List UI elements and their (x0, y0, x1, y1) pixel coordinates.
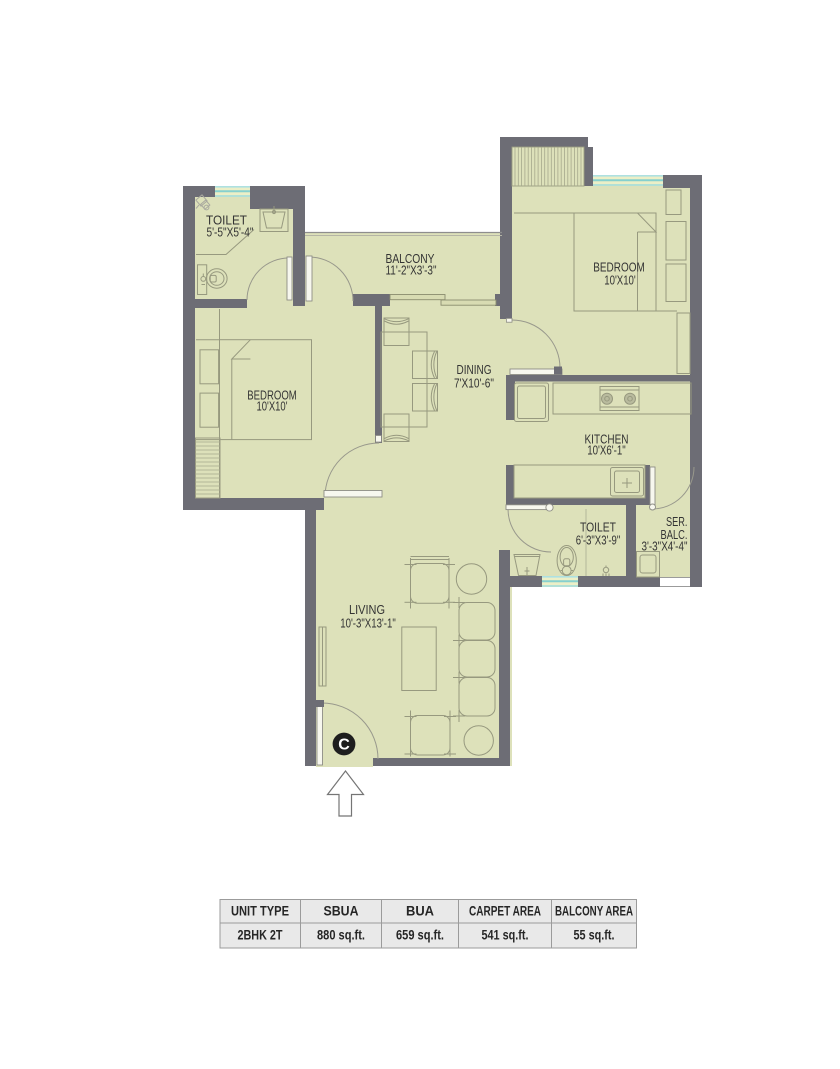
svg-text:BALCONY AREA: BALCONY AREA (555, 904, 633, 919)
svg-text:10'X10': 10'X10' (257, 400, 288, 414)
svg-text:659 sq.ft.: 659 sq.ft. (396, 928, 444, 943)
svg-text:541 sq.ft.: 541 sq.ft. (482, 928, 529, 943)
svg-text:55 sq.ft.: 55 sq.ft. (574, 928, 615, 943)
svg-text:UNIT TYPE: UNIT TYPE (231, 904, 289, 919)
svg-text:10'X10': 10'X10' (604, 274, 636, 288)
svg-text:11'-2"X3'-3": 11'-2"X3'-3" (386, 264, 437, 278)
svg-text:DINING: DINING (457, 363, 492, 377)
svg-text:5'-5"X5'-4": 5'-5"X5'-4" (207, 226, 254, 240)
svg-text:10'-3"X13'-1": 10'-3"X13'-1" (340, 617, 396, 631)
svg-text:7'X10'-6": 7'X10'-6" (454, 377, 494, 391)
svg-text:CARPET AREA: CARPET AREA (469, 904, 541, 919)
svg-text:10'X6'-1": 10'X6'-1" (587, 444, 626, 458)
svg-text:SBUA: SBUA (324, 904, 359, 919)
svg-text:880 sq.ft.: 880 sq.ft. (317, 928, 365, 943)
svg-text:BUA: BUA (406, 904, 434, 919)
svg-text:3'-3"X4'-4": 3'-3"X4'-4" (642, 540, 688, 554)
svg-text:2BHK 2T: 2BHK 2T (238, 928, 284, 943)
svg-text:C: C (338, 737, 350, 754)
svg-text:SER.: SER. (666, 515, 688, 529)
svg-text:BEDROOM: BEDROOM (593, 261, 645, 275)
svg-text:LIVING: LIVING (349, 603, 385, 617)
svg-text:TOILET: TOILET (580, 521, 616, 535)
svg-text:6'-3"X3'-9": 6'-3"X3'-9" (576, 534, 621, 548)
